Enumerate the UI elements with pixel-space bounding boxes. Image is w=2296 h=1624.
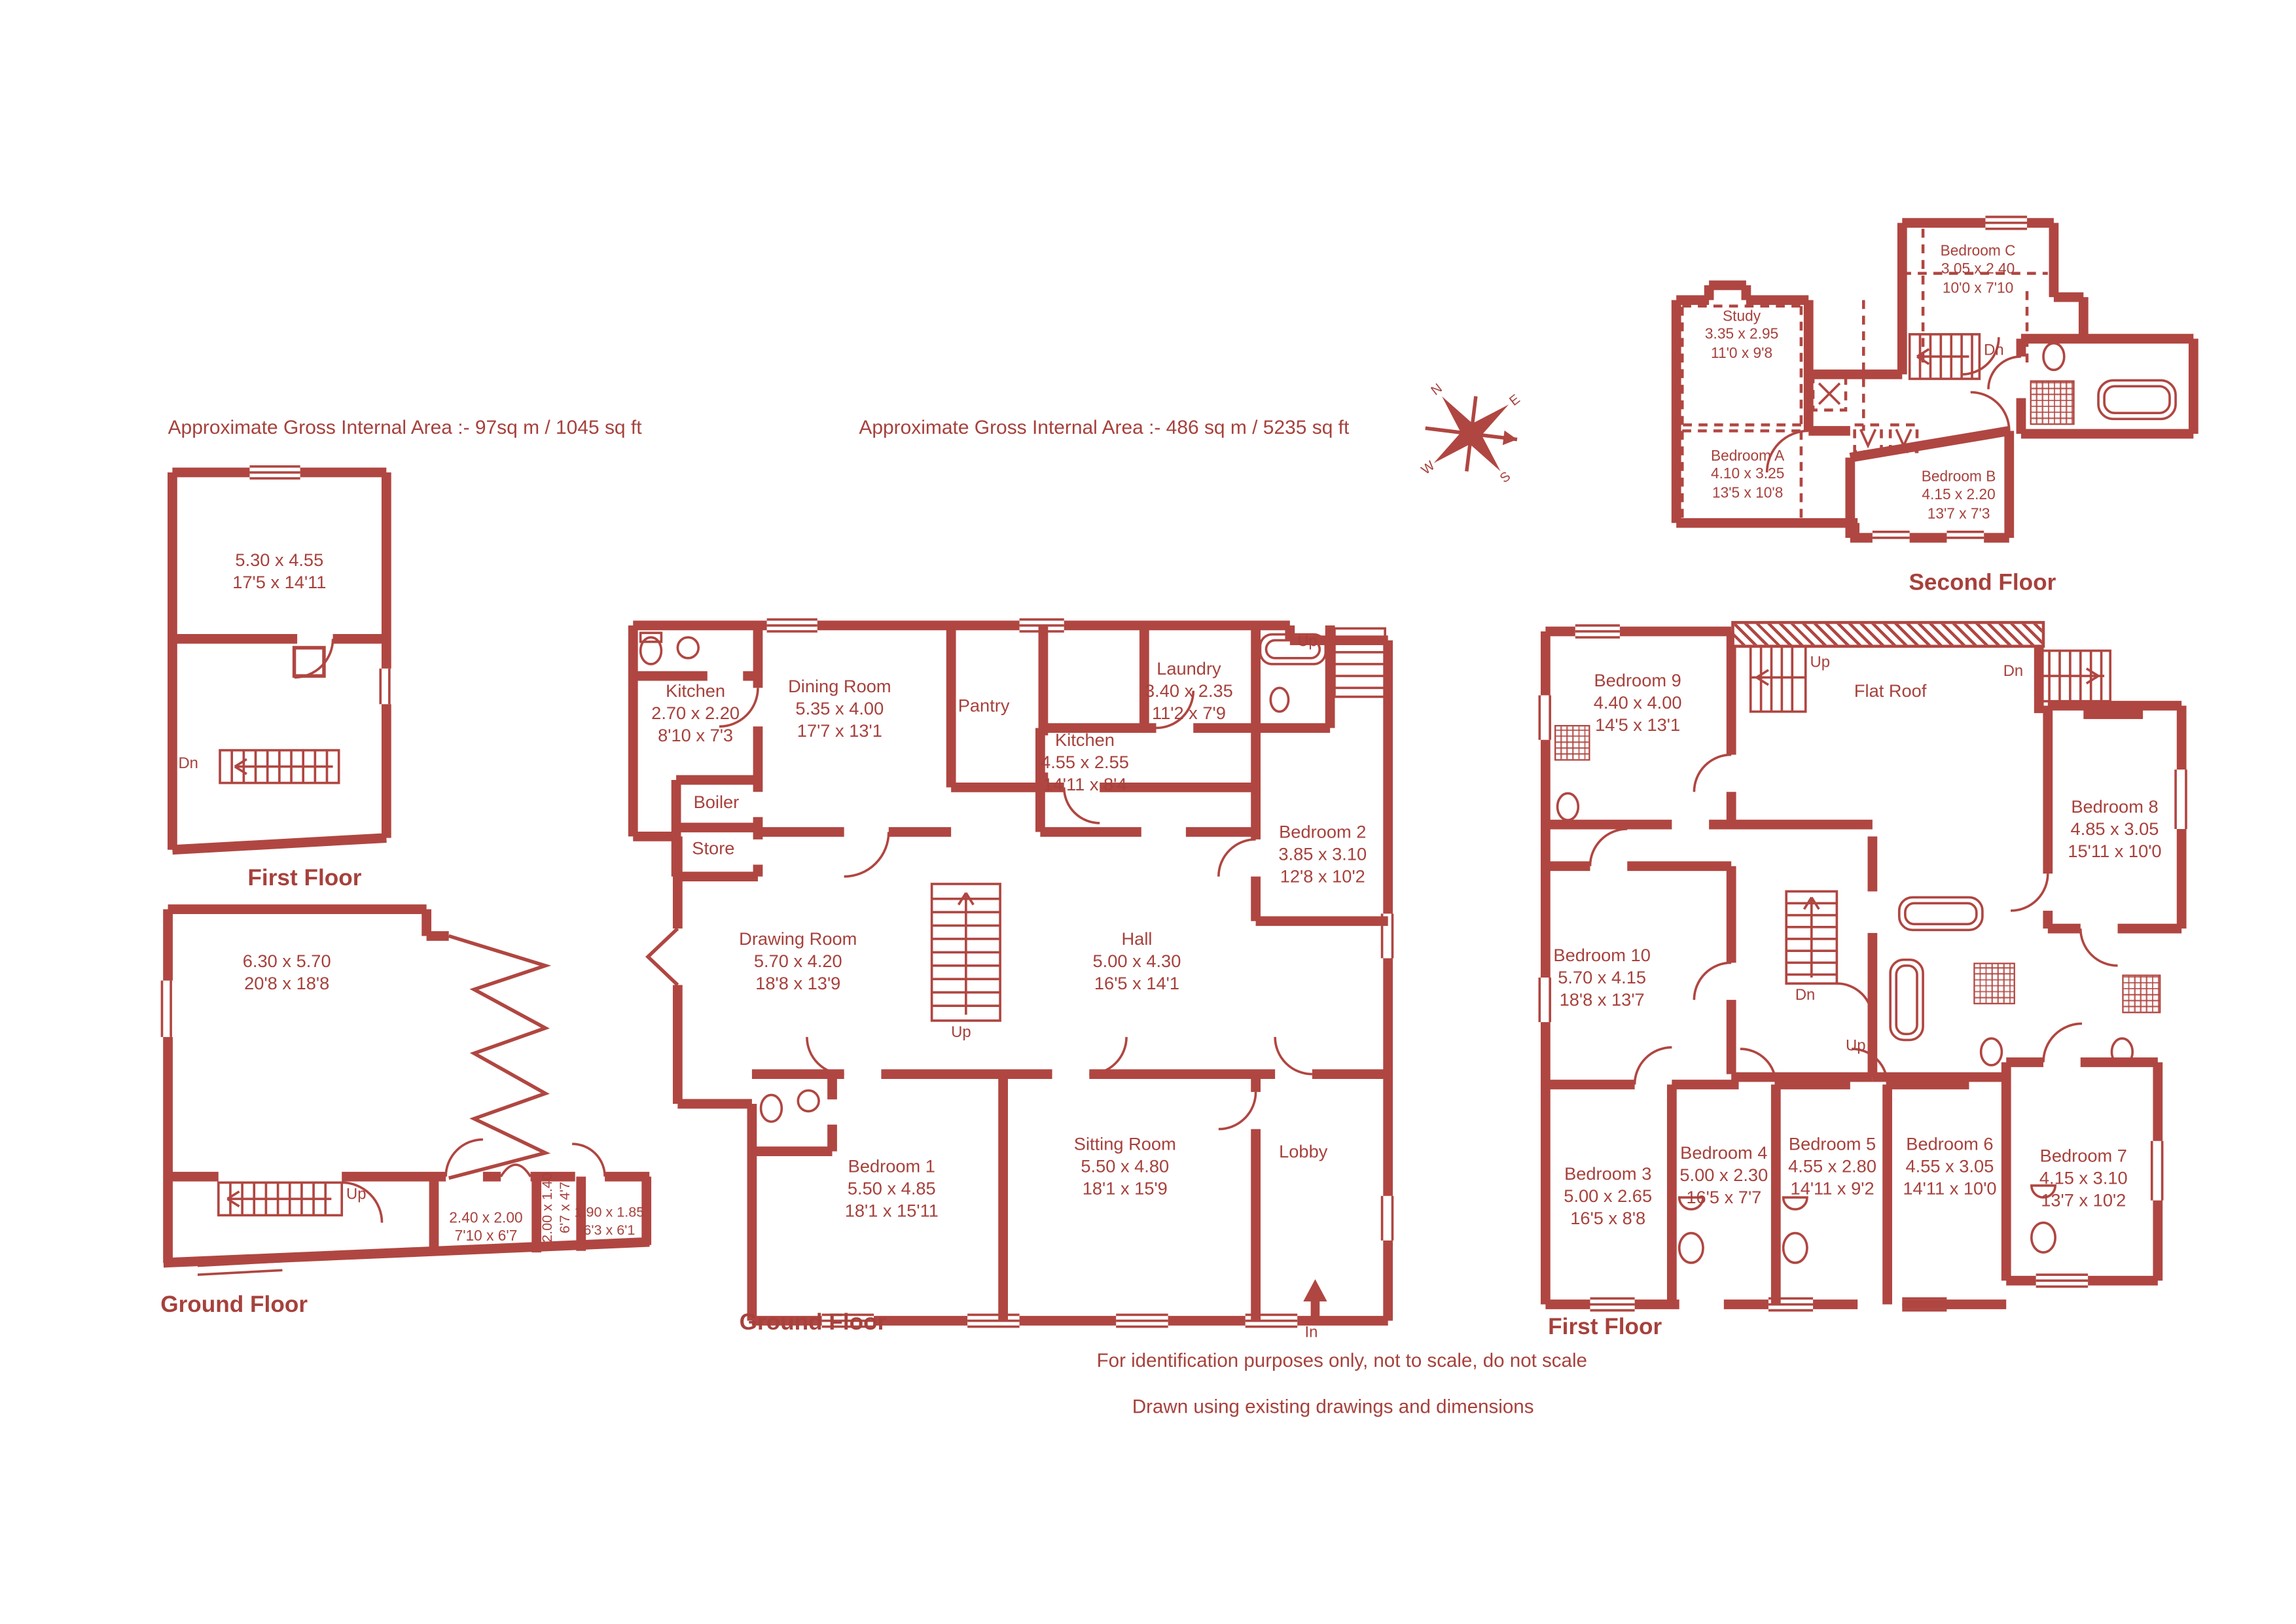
compass-w-label: W	[1419, 458, 1438, 478]
room-label-bedroom-b: Bedroom B 4.15 x 2.20 13'7 x 7'3	[1877, 469, 2041, 524]
footnote-drawn: Drawn using existing drawings and dimens…	[888, 1395, 1779, 1417]
compass-rose-icon: N E S W	[1412, 374, 1531, 493]
stairs-dn-label: Dn	[1984, 342, 2004, 359]
plan-annexe-ground-floor: 6.30 x 5.70 20'8 x 18'8 2.40 x 2.00 7'10…	[156, 891, 668, 1337]
stairs-up-mid-label: Up	[1846, 1037, 1866, 1055]
room-label-annexe-room: 5.30 x 4.55 17'5 x 14'11	[166, 550, 392, 594]
room-label-bedroom-c: Bedroom C 3.05 x 2.40 10'0 x 7'10	[1896, 243, 2060, 298]
stairs-up-back-label: Up	[1297, 633, 1318, 650]
room-label-annexe-main: 6.30 x 5.70 20'8 x 18'8	[198, 951, 376, 995]
shower-icon	[1973, 962, 2015, 1004]
annexe-first-floor-title: First Floor	[186, 866, 423, 893]
plan-main-first-floor: Bedroom 9 4.40 x 4.00 14'5 x 13'1 Flat R…	[1531, 606, 2214, 1349]
room-label-flat-roof: Flat Roof	[1801, 680, 1979, 703]
room-label-bedroom-2: Bedroom 2 3.85 x 3.10 12'8 x 10'2	[1234, 822, 1412, 888]
main-first-floor-title: First Floor	[1531, 1315, 1679, 1341]
room-label-kitchen-main: Kitchen 4.55 x 2.55 14'11 x 8'4	[996, 730, 1174, 796]
stairs-up-label: Up	[346, 1186, 367, 1203]
compass-n-label: N	[1429, 381, 1445, 398]
entrance-in-label: In	[1305, 1324, 1318, 1341]
annexe-area-header: Approximate Gross Internal Area :- 97sq …	[168, 416, 642, 438]
footnote-identification: For identification purposes only, not to…	[896, 1349, 1787, 1371]
room-label-drawing-room: Drawing Room 5.70 x 4.20 18'8 x 13'9	[709, 928, 887, 995]
room-label-hall: Hall 5.00 x 4.30 16'5 x 14'1	[1048, 928, 1226, 995]
room-label-bedroom-8: Bedroom 8 4.85 x 3.05 15'11 x 10'0	[2026, 796, 2204, 862]
main-area-header: Approximate Gross Internal Area :- 486 s…	[859, 416, 1349, 438]
plan-main-ground-floor: Kitchen 2.70 x 2.20 8'10 x 7'3 Dining Ro…	[621, 602, 1401, 1345]
room-label-bedroom-10: Bedroom 10 5.70 x 4.15 18'8 x 13'7	[1513, 945, 1691, 1011]
room-label-sitting-room: Sitting Room 5.50 x 4.80 18'1 x 15'9	[1036, 1133, 1214, 1199]
room-label-bedroom-a: Bedroom A 4.10 x 3.25 13'5 x 10'8	[1666, 449, 1829, 504]
flat-roof-hatch	[1731, 621, 2045, 648]
stairs-dn-top-label: Dn	[2003, 663, 2024, 680]
main-ground-floor-title: Ground Floor	[694, 1311, 931, 1337]
floorplan-sheet: Approximate Gross Internal Area :- 97sq …	[0, 0, 2296, 1624]
room-label-bedroom-7: Bedroom 7 4.15 x 3.10 13'7 x 10'2	[1994, 1146, 2172, 1212]
plan-annexe-first-floor: 5.30 x 4.55 17'5 x 14'11 Dn First Floor	[166, 457, 392, 903]
room-label-lobby: Lobby	[1214, 1141, 1392, 1163]
room-label-pantry: Pantry	[895, 696, 1073, 718]
room-label-store: Store	[624, 838, 802, 860]
second-floor-title: Second Floor	[1863, 571, 2101, 597]
annexe-ground-floor-title: Ground Floor	[160, 1292, 308, 1319]
stairs-down-label: Dn	[178, 754, 198, 772]
compass-s-label: S	[1498, 469, 1513, 486]
room-label-boiler: Boiler	[627, 792, 805, 814]
compass-icon: N E S W	[1412, 374, 1531, 493]
room-label-study: Study 3.35 x 2.95 11'0 x 9'8	[1660, 309, 1823, 364]
stairs-up-top-label: Up	[1810, 654, 1831, 671]
room-label-bedroom-9: Bedroom 9 4.40 x 4.00 14'5 x 13'1	[1549, 670, 1727, 736]
room-label-laundry: Laundry 3.40 x 2.35 11'2 x 7'9	[1100, 658, 1278, 724]
stairs-dn-mid-label: Dn	[1795, 987, 1816, 1004]
shower-icon	[2030, 380, 2075, 425]
stairs-up-main-label: Up	[951, 1023, 971, 1041]
annexe-first-floor-drawing	[166, 457, 392, 903]
shower-icon	[2122, 974, 2161, 1013]
room-label-bedroom-1: Bedroom 1 5.50 x 4.85 18'1 x 15'11	[802, 1156, 980, 1222]
plan-second-floor: Bedroom C 3.05 x 2.40 10'0 x 7'10 Study …	[1664, 208, 2214, 609]
compass-e-label: E	[1507, 392, 1522, 409]
